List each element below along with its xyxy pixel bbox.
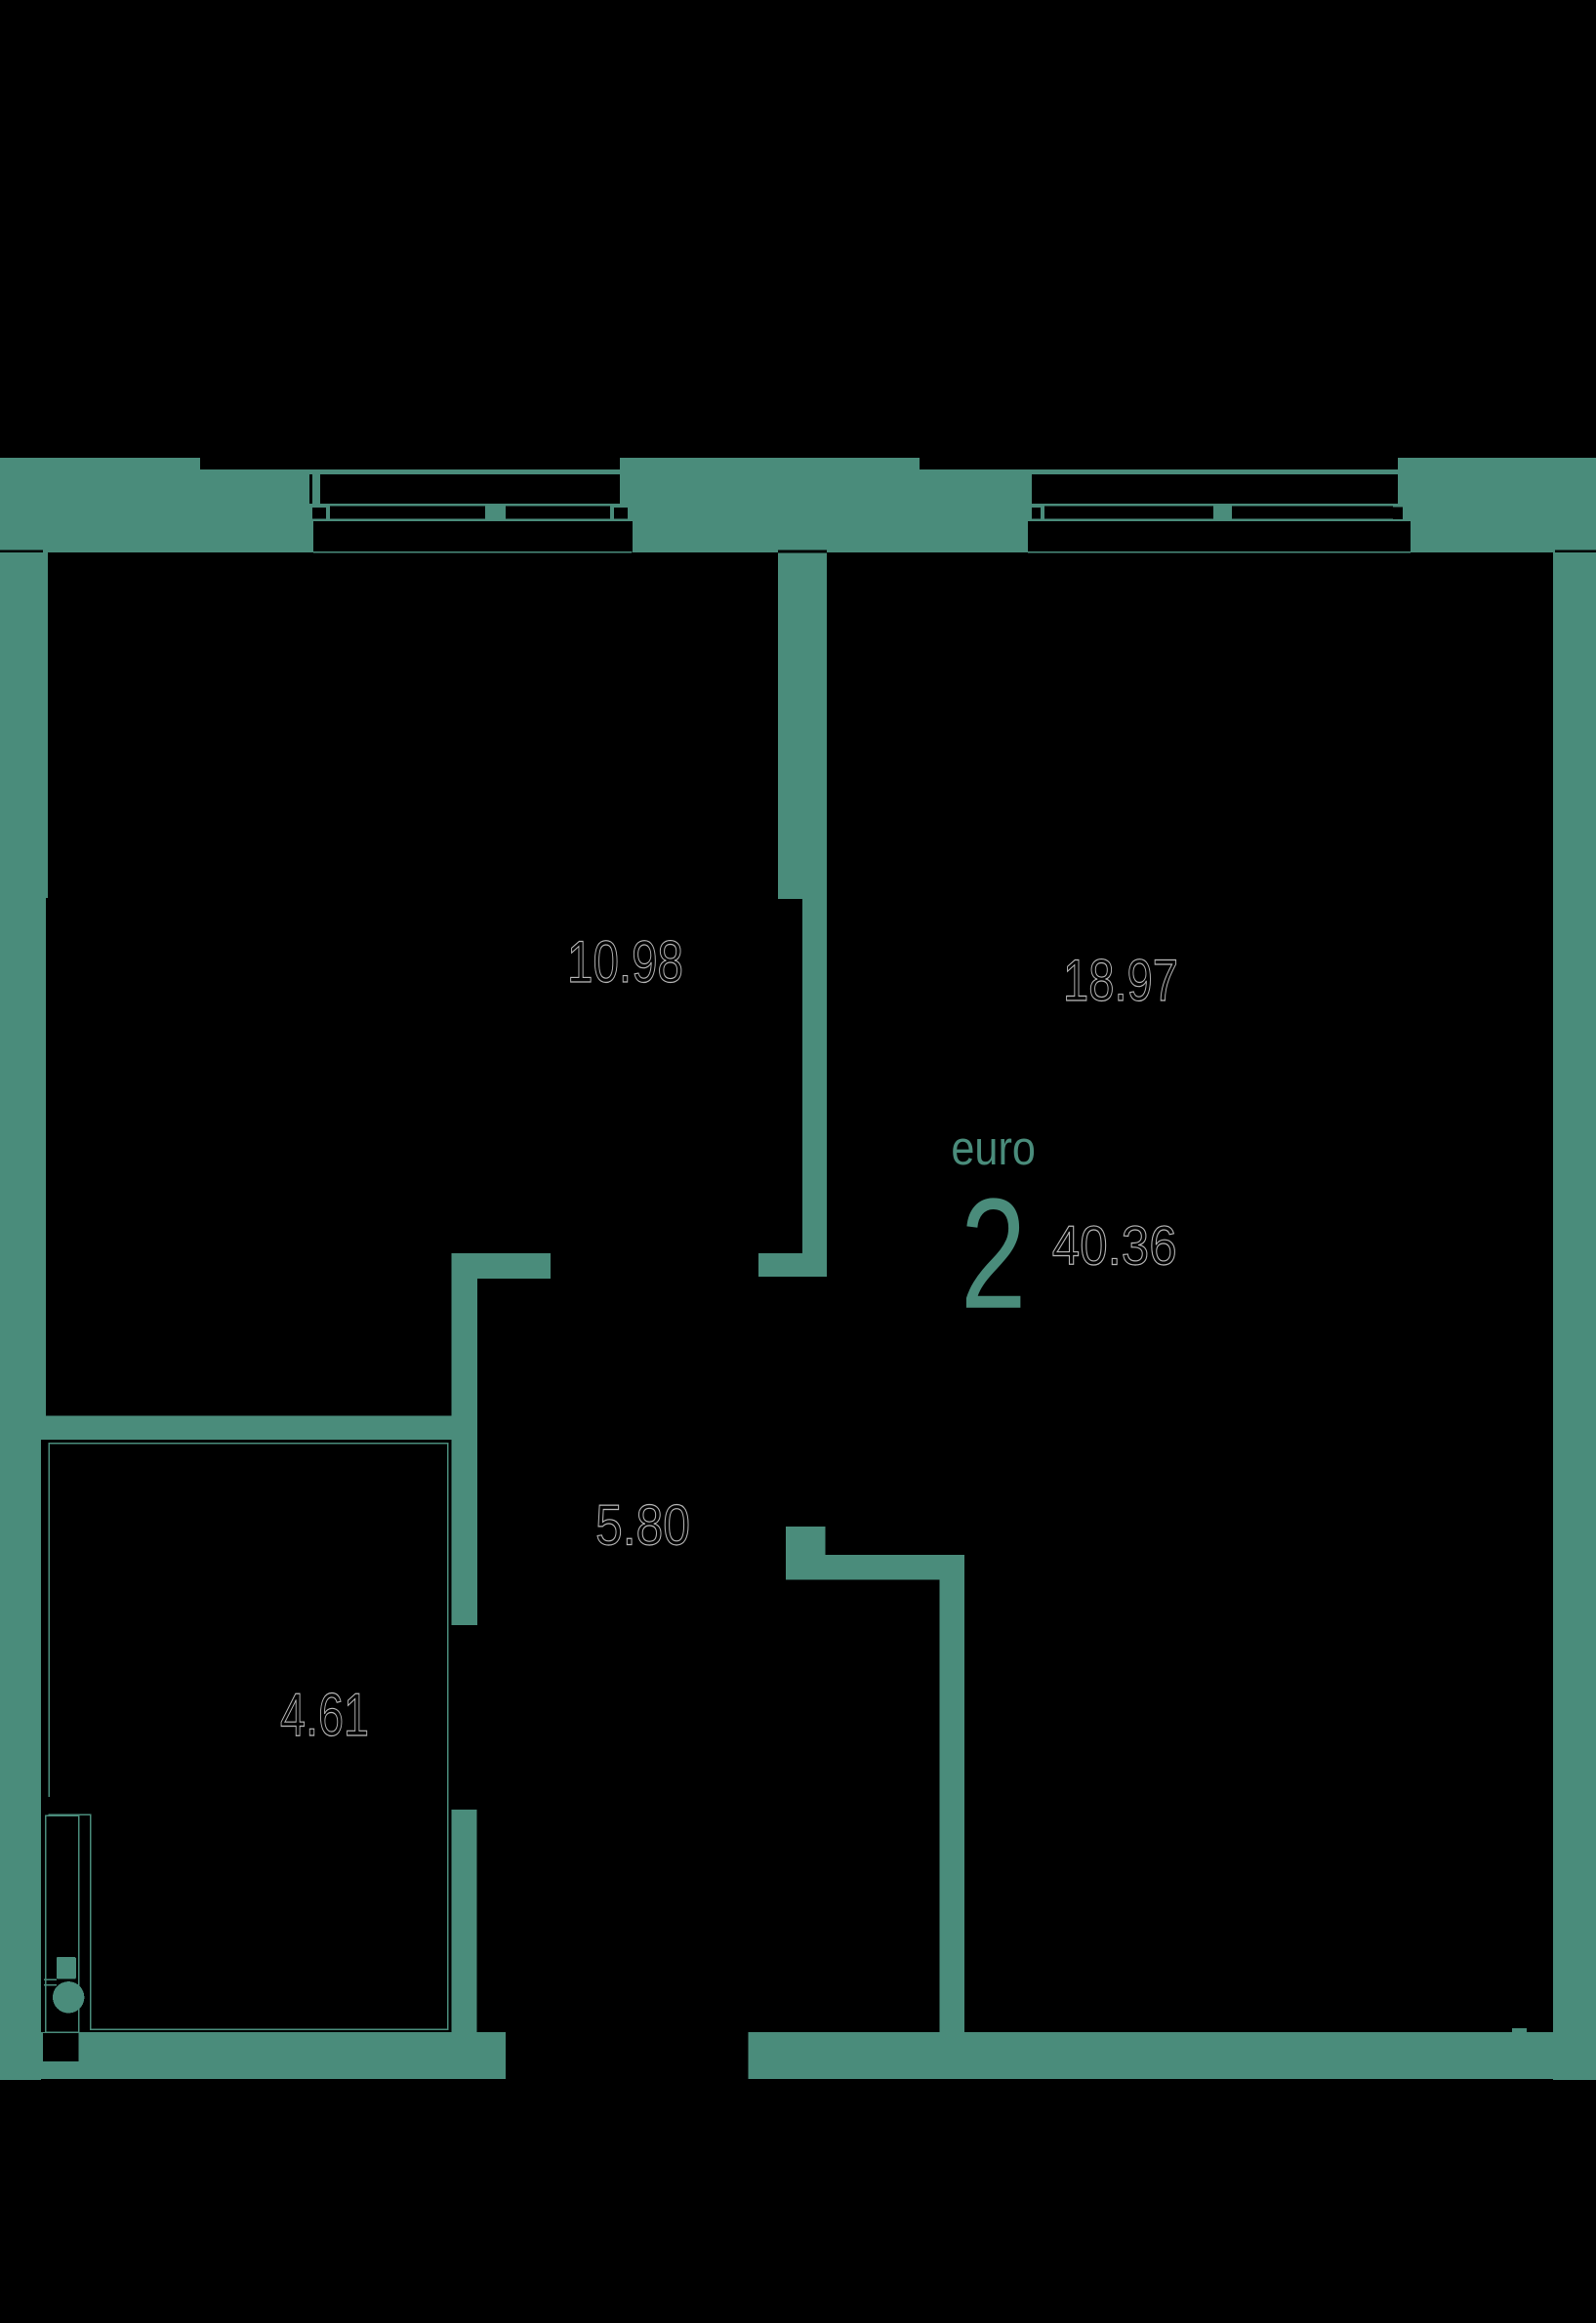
svg-text:4.61: 4.61 (280, 1681, 369, 1749)
svg-text:10.98: 10.98 (567, 928, 683, 995)
svg-text:2: 2 (961, 1166, 1027, 1342)
svg-text:5.80: 5.80 (595, 1494, 690, 1558)
svg-text:18.97: 18.97 (1063, 948, 1178, 1013)
svg-text:40.36: 40.36 (1052, 1216, 1177, 1278)
